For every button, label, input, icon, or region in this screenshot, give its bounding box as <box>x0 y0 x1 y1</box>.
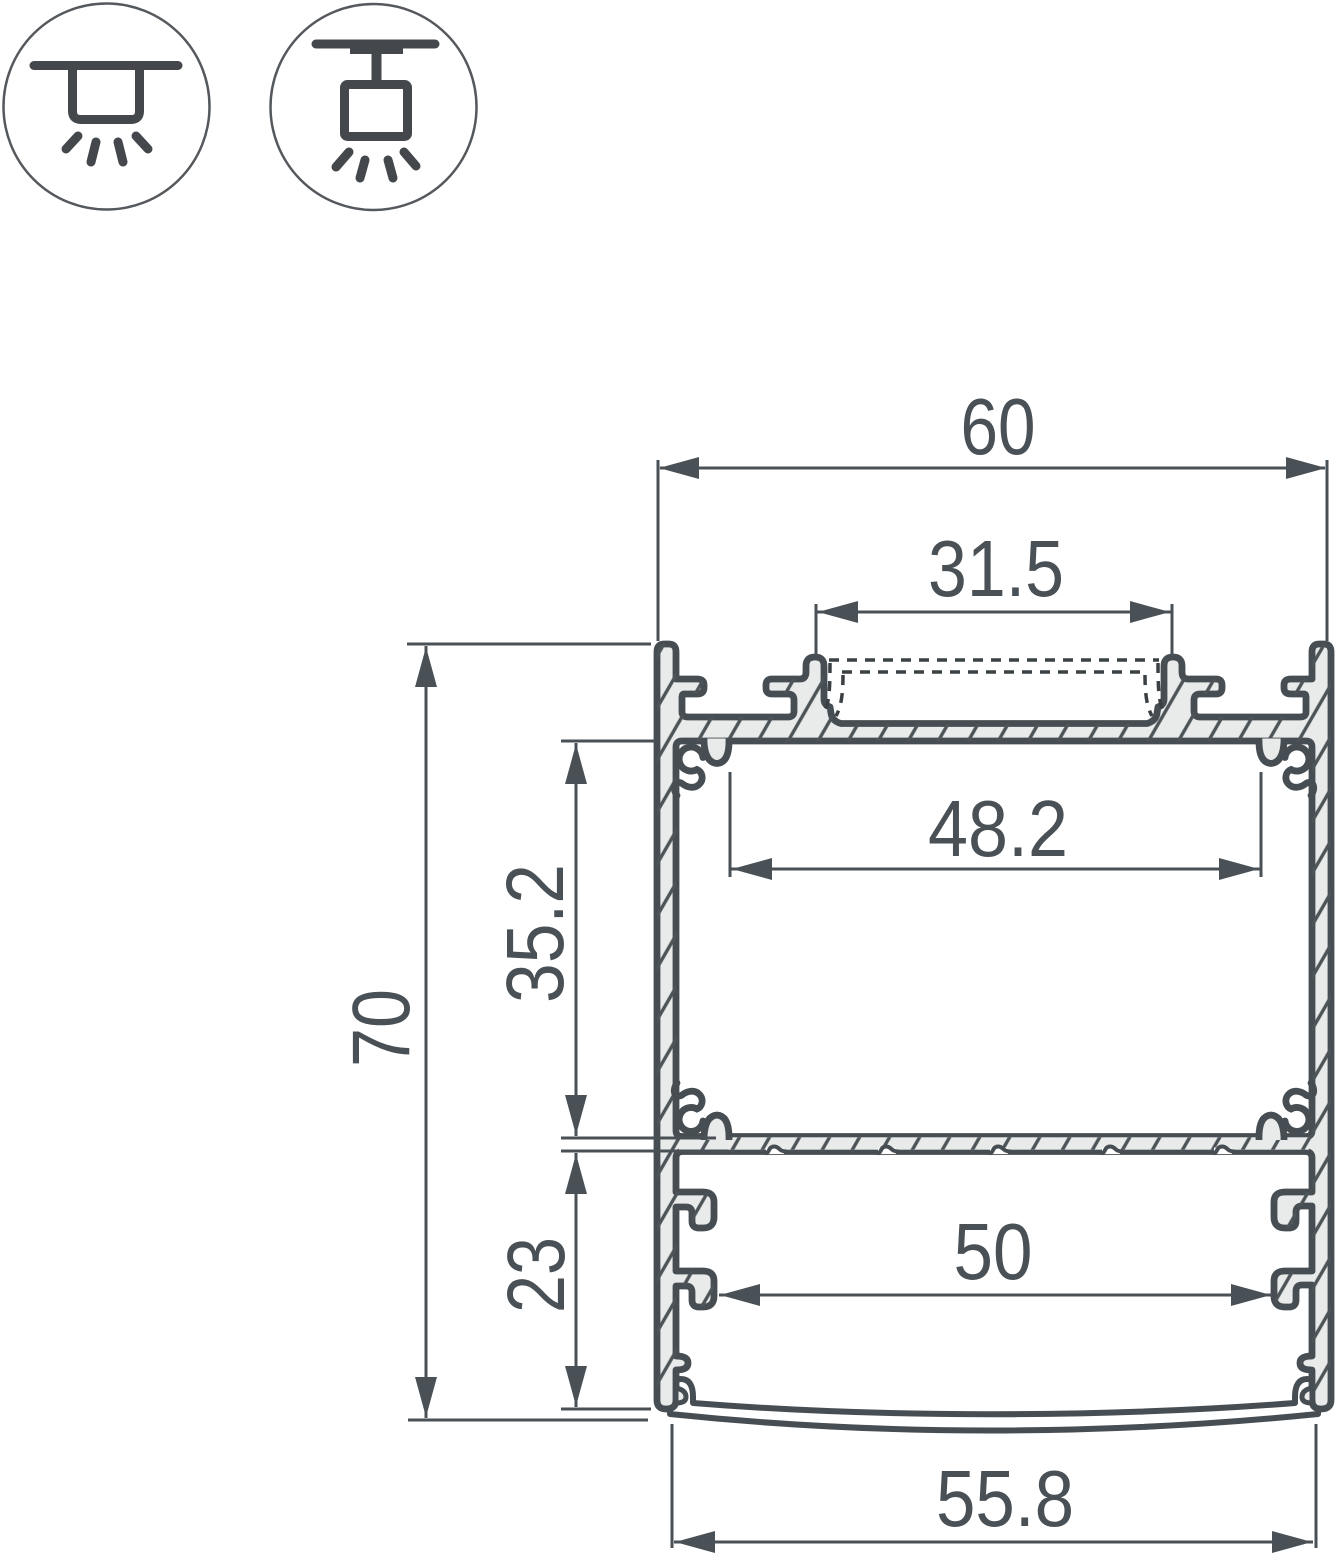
svg-text:70: 70 <box>336 989 427 1067</box>
svg-text:60: 60 <box>961 382 1036 471</box>
svg-text:55.8: 55.8 <box>936 1454 1074 1543</box>
svg-text:23: 23 <box>491 1237 582 1313</box>
svg-text:35.2: 35.2 <box>490 864 581 1003</box>
svg-text:31.5: 31.5 <box>928 524 1064 613</box>
svg-text:48.2: 48.2 <box>928 784 1068 873</box>
svg-text:50: 50 <box>954 1207 1033 1296</box>
